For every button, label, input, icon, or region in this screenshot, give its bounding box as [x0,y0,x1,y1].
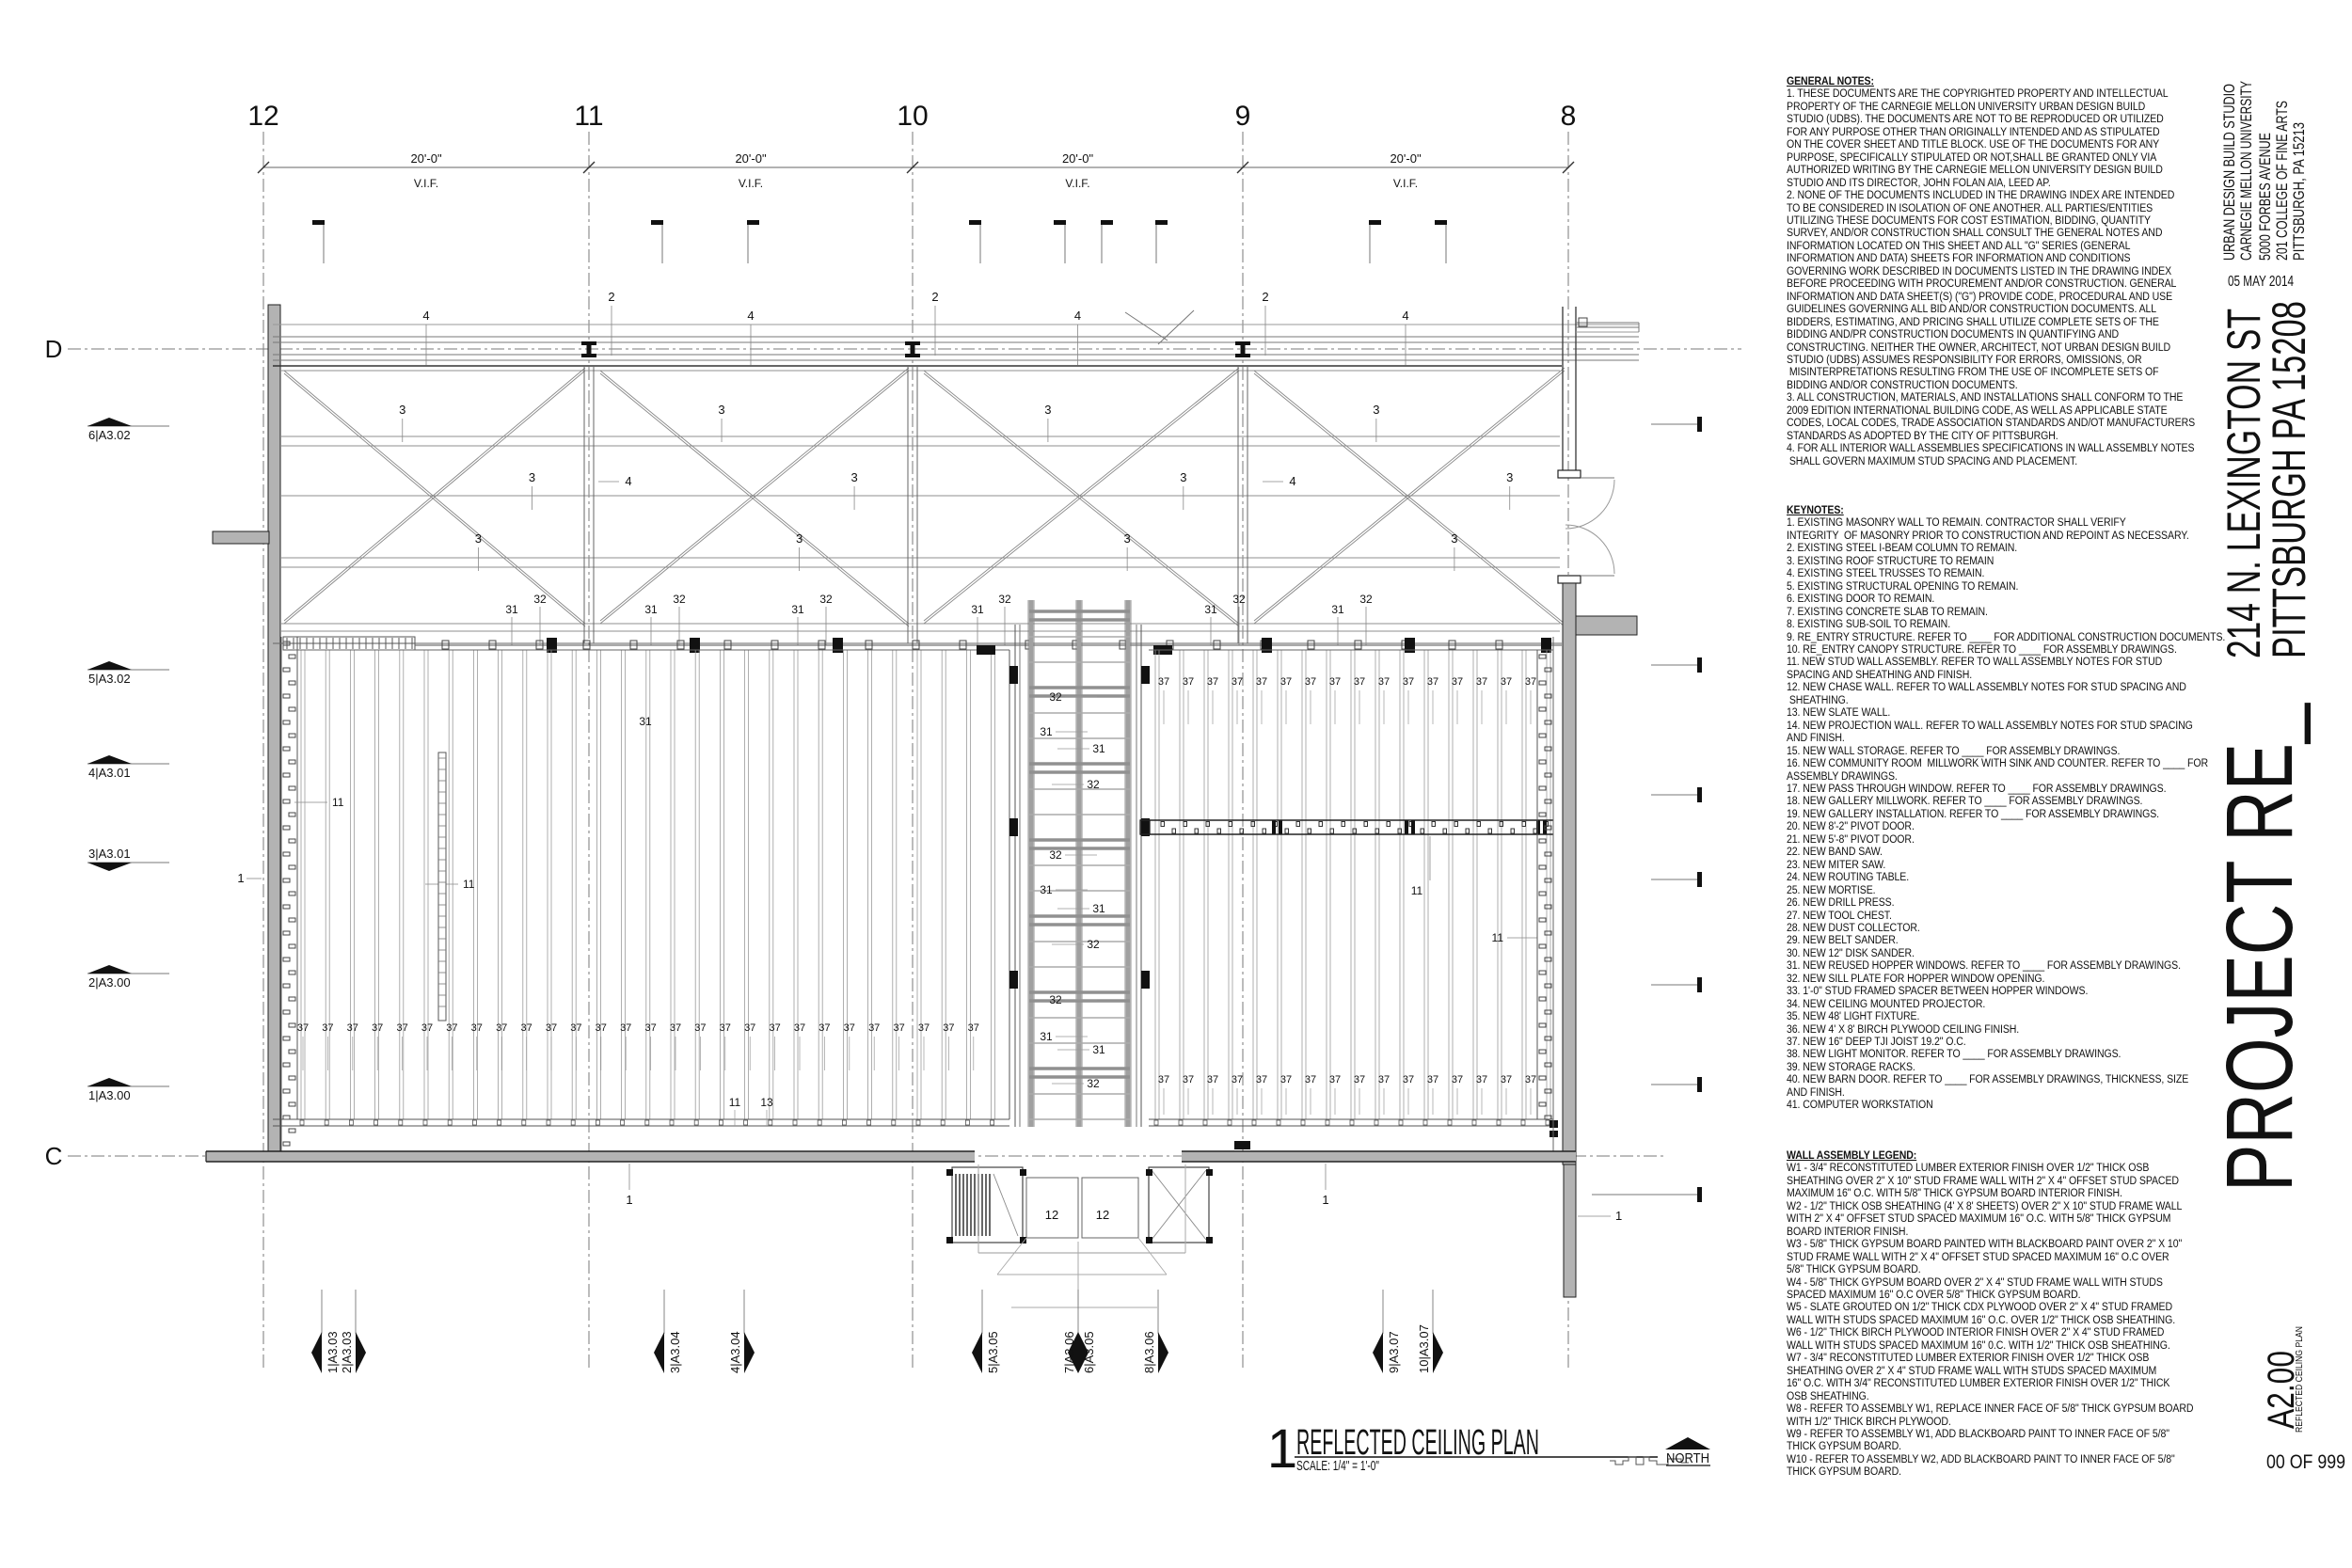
svg-text:31: 31 [644,603,658,616]
svg-text:4: 4 [1074,309,1081,323]
svg-text:4: 4 [625,474,631,488]
svg-text:37: 37 [1183,1074,1194,1085]
svg-text:37: 37 [644,1022,656,1034]
svg-text:37: 37 [1427,676,1438,688]
svg-text:11: 11 [1492,931,1504,944]
svg-text:37: 37 [1183,676,1194,688]
svg-text:37: 37 [1207,676,1218,688]
svg-text:11: 11 [574,101,603,132]
svg-text:32: 32 [1359,593,1373,606]
svg-text:37: 37 [1403,1074,1414,1085]
svg-text:37: 37 [396,1022,407,1034]
svg-text:4|A3.01: 4|A3.01 [88,766,131,780]
svg-text:8: 8 [1561,101,1577,132]
svg-text:37: 37 [1452,1074,1463,1085]
svg-text:37: 37 [1256,1074,1267,1085]
svg-text:12: 12 [247,101,278,132]
svg-text:PITTSBURGH PA 15208: PITTSBURGH PA 15208 [2263,301,2315,658]
svg-text:3: 3 [529,470,535,484]
svg-text:2: 2 [608,290,614,304]
svg-text:37: 37 [1280,1074,1292,1085]
svg-text:37: 37 [670,1022,681,1034]
svg-text:C: C [45,1142,63,1170]
svg-text:37: 37 [1501,1074,1512,1085]
svg-text:13: 13 [760,1096,773,1109]
svg-text:37: 37 [1158,676,1169,688]
svg-text:2: 2 [1262,290,1268,304]
svg-text:V.I.F.: V.I.F. [1393,177,1418,190]
svg-text:2|A3.00: 2|A3.00 [88,975,131,990]
svg-text:37: 37 [372,1022,383,1034]
svg-text:37: 37 [868,1022,880,1034]
svg-text:37: 37 [347,1022,358,1034]
svg-text:05 MAY 2014: 05 MAY 2014 [2228,274,2294,290]
svg-text:V.I.F.: V.I.F. [739,177,763,190]
svg-text:37: 37 [1329,1074,1341,1085]
svg-text:31: 31 [1040,725,1053,738]
svg-text:3: 3 [475,531,482,546]
svg-text:11: 11 [463,878,475,891]
svg-text:9: 9 [1235,101,1251,132]
svg-text:37: 37 [1525,676,1536,688]
svg-text:37: 37 [1452,676,1463,688]
svg-text:PITTSBURGH, PA 15213: PITTSBURGH, PA 15213 [2291,122,2308,261]
svg-text:37: 37 [818,1022,830,1034]
svg-text:1: 1 [1267,1418,1297,1480]
svg-text:3: 3 [1124,531,1131,546]
svg-text:1: 1 [237,871,244,885]
svg-text:37: 37 [720,1022,731,1034]
svg-text:D: D [45,335,63,363]
svg-text:37: 37 [421,1022,433,1034]
svg-text:37: 37 [744,1022,755,1034]
svg-text:10|A3.07: 10|A3.07 [1417,1324,1431,1373]
svg-text:37: 37 [1501,676,1512,688]
svg-text:201 COLLEGE OF FINE ARTS: 201 COLLEGE OF FINE ARTS [2274,101,2291,261]
svg-text:31: 31 [1040,1030,1053,1043]
svg-text:37: 37 [322,1022,333,1034]
svg-text:37: 37 [844,1022,855,1034]
svg-text:REFLECTED CEILING PLAN: REFLECTED CEILING PLAN [2294,1326,2305,1433]
svg-text:3: 3 [850,470,857,484]
svg-text:37: 37 [1476,1074,1487,1085]
svg-text:3|A3.01: 3|A3.01 [88,847,131,861]
svg-text:37: 37 [546,1022,557,1034]
svg-text:37: 37 [1232,676,1243,688]
svg-text:1|A3.00: 1|A3.00 [88,1088,131,1102]
svg-text:3: 3 [399,403,405,417]
svg-text:37: 37 [471,1022,483,1034]
svg-text:8|A3.06: 8|A3.06 [1142,1331,1156,1373]
svg-text:4|A3.04: 4|A3.04 [728,1331,742,1373]
svg-text:37: 37 [1525,1074,1536,1085]
svg-text:37: 37 [769,1022,780,1034]
svg-text:37: 37 [893,1022,904,1034]
svg-text:3: 3 [796,531,803,546]
svg-text:31: 31 [1040,883,1053,896]
svg-text:37: 37 [918,1022,930,1034]
svg-text:37: 37 [297,1022,309,1034]
svg-text:37: 37 [1403,676,1414,688]
svg-text:4: 4 [422,309,429,323]
svg-text:37: 37 [1378,1074,1390,1085]
svg-text:PROJECT RE_: PROJECT RE_ [2207,703,2312,1192]
svg-text:10: 10 [897,101,928,132]
svg-text:5000 FORBES AVENUE: 5000 FORBES AVENUE [2257,133,2274,261]
svg-text:31: 31 [1092,1043,1105,1056]
svg-text:37: 37 [570,1022,581,1034]
svg-text:3: 3 [718,403,724,417]
svg-text:1|A3.03: 1|A3.03 [326,1331,340,1373]
svg-text:4: 4 [1402,309,1408,323]
svg-text:7|A3.06: 7|A3.06 [1062,1331,1076,1373]
svg-text:4: 4 [1289,474,1295,488]
svg-text:2: 2 [931,290,938,304]
svg-text:20'-0": 20'-0" [735,151,767,166]
svg-text:37: 37 [1207,1074,1218,1085]
svg-text:32: 32 [1232,593,1246,606]
svg-text:37: 37 [1232,1074,1243,1085]
svg-text:1: 1 [626,1193,632,1207]
svg-text:32: 32 [533,593,547,606]
svg-text:NORTH: NORTH [1666,1450,1709,1466]
svg-text:20'-0": 20'-0" [1062,151,1094,166]
svg-text:5|A3.05: 5|A3.05 [986,1331,1000,1373]
svg-text:37: 37 [1158,1074,1169,1085]
svg-text:31: 31 [1331,603,1344,616]
svg-text:00 OF 999: 00 OF 999 [2266,1451,2345,1473]
svg-text:37: 37 [1305,1074,1316,1085]
svg-text:37: 37 [1476,676,1487,688]
svg-text:1: 1 [1615,1209,1622,1223]
svg-text:37: 37 [520,1022,532,1034]
svg-text:12: 12 [1045,1208,1058,1222]
svg-text:11: 11 [1411,884,1423,897]
svg-text:3: 3 [1506,470,1513,484]
svg-text:31: 31 [505,603,518,616]
svg-text:31: 31 [1092,902,1105,915]
svg-text:37: 37 [620,1022,631,1034]
svg-text:3: 3 [1451,531,1457,546]
svg-text:37: 37 [1354,676,1365,688]
svg-text:SCALE: 1/4" = 1'-0": SCALE: 1/4" = 1'-0" [1296,1458,1379,1474]
svg-text:31: 31 [1092,742,1105,755]
svg-text:1: 1 [1322,1193,1328,1207]
svg-text:37: 37 [694,1022,706,1034]
svg-text:32: 32 [998,593,1011,606]
svg-text:CARNEGIE MELLON UNIVERSITY: CARNEGIE MELLON UNIVERSITY [2238,81,2255,261]
svg-text:31: 31 [1204,603,1217,616]
svg-text:32: 32 [1087,778,1100,791]
svg-text:11: 11 [729,1096,741,1109]
svg-text:37: 37 [596,1022,607,1034]
svg-text:3: 3 [1044,403,1051,417]
svg-text:3|A3.04: 3|A3.04 [668,1331,682,1373]
svg-text:31: 31 [639,715,652,728]
svg-text:37: 37 [1354,1074,1365,1085]
svg-text:4: 4 [747,309,754,323]
svg-text:37: 37 [496,1022,507,1034]
svg-text:31: 31 [791,603,804,616]
svg-text:37: 37 [1427,1074,1438,1085]
svg-text:32: 32 [1087,938,1100,951]
svg-text:V.I.F.: V.I.F. [414,177,438,190]
svg-text:32: 32 [819,593,833,606]
svg-text:20'-0": 20'-0" [1390,151,1422,166]
svg-text:32: 32 [1049,848,1062,862]
svg-text:32: 32 [673,593,686,606]
svg-text:37: 37 [1256,676,1267,688]
svg-text:37: 37 [446,1022,457,1034]
svg-text:3: 3 [1373,403,1379,417]
svg-text:37: 37 [794,1022,805,1034]
svg-text:32: 32 [1049,690,1062,704]
svg-text:V.I.F.: V.I.F. [1065,177,1089,190]
svg-text:URBAN DESIGN BUILD STUDIO: URBAN DESIGN BUILD STUDIO [2221,84,2238,261]
svg-text:5|A3.02: 5|A3.02 [88,672,131,686]
svg-text:31: 31 [971,603,984,616]
svg-text:11: 11 [332,796,344,809]
svg-text:2|A3.03: 2|A3.03 [340,1331,354,1373]
svg-text:12: 12 [1096,1208,1109,1222]
svg-text:37: 37 [1280,676,1292,688]
svg-text:9|A3.07: 9|A3.07 [1387,1331,1401,1373]
svg-text:37: 37 [943,1022,954,1034]
svg-text:37: 37 [968,1022,979,1034]
svg-text:3: 3 [1180,470,1186,484]
svg-text:37: 37 [1378,676,1390,688]
svg-text:6|A3.02: 6|A3.02 [88,428,131,442]
svg-text:20'-0": 20'-0" [410,151,442,166]
svg-text:37: 37 [1329,676,1341,688]
svg-text:32: 32 [1087,1077,1100,1090]
svg-text:37: 37 [1305,676,1316,688]
svg-text:32: 32 [1049,993,1062,1006]
